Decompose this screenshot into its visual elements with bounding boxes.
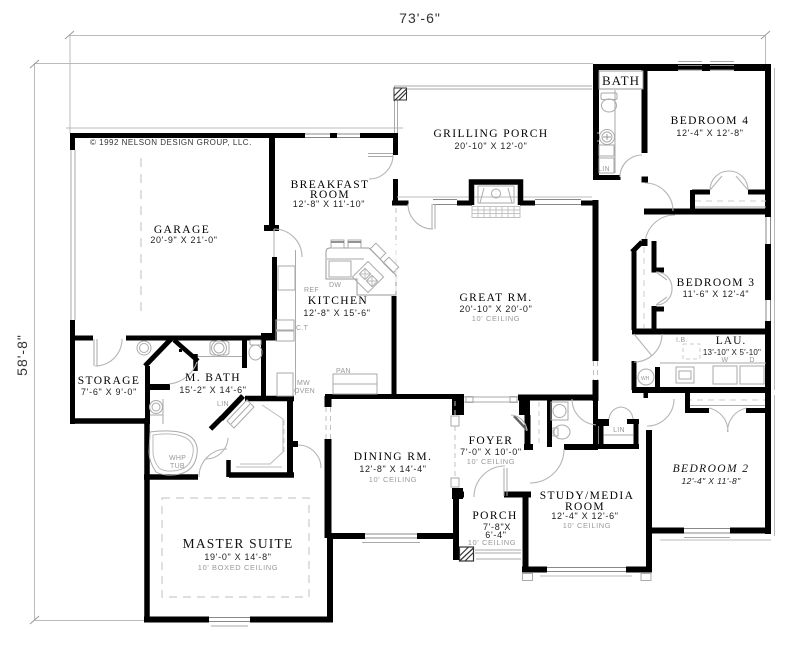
svg-text:11'-6" X 12'-4": 11'-6" X 12'-4" bbox=[683, 289, 750, 299]
svg-text:10' CEILING: 10' CEILING bbox=[369, 475, 417, 484]
svg-text:58'-8": 58'-8" bbox=[14, 334, 30, 376]
svg-text:MASTER SUITE: MASTER SUITE bbox=[183, 536, 294, 551]
svg-text:BEDROOM 3: BEDROOM 3 bbox=[677, 277, 756, 289]
svg-text:20'-10" X 20'-0": 20'-10" X 20'-0" bbox=[459, 304, 532, 314]
svg-text:LIN: LIN bbox=[613, 427, 625, 434]
svg-text:D: D bbox=[749, 357, 754, 364]
svg-text:PORCH: PORCH bbox=[472, 510, 517, 522]
svg-text:WHP: WHP bbox=[169, 455, 186, 462]
svg-text:LAU.: LAU. bbox=[716, 335, 747, 347]
svg-text:20'-9" X 21'-0": 20'-9" X 21'-0" bbox=[150, 235, 217, 245]
svg-text:LIN: LIN bbox=[598, 166, 610, 173]
svg-text:M. BATH: M. BATH bbox=[185, 372, 241, 384]
svg-text:10' CEILING: 10' CEILING bbox=[563, 521, 611, 530]
svg-text:MW: MW bbox=[297, 380, 310, 387]
svg-text:OVEN: OVEN bbox=[294, 388, 315, 395]
svg-text:12'-8" X 11'-10": 12'-8" X 11'-10" bbox=[293, 199, 365, 209]
svg-text:GRILLING PORCH: GRILLING PORCH bbox=[433, 128, 548, 140]
svg-text:10' CEILING: 10' CEILING bbox=[468, 538, 516, 547]
svg-text:GREAT RM.: GREAT RM. bbox=[459, 292, 532, 304]
svg-text:DW: DW bbox=[329, 282, 341, 289]
svg-text:BEDROOM 4: BEDROOM 4 bbox=[671, 115, 750, 127]
svg-text:BATH: BATH bbox=[602, 73, 640, 88]
svg-text:10' BOXED CEILING: 10' BOXED CEILING bbox=[198, 563, 278, 572]
svg-text:7'-0" X 10'-0": 7'-0" X 10'-0" bbox=[460, 447, 522, 457]
svg-text:13'-10" X 5'-10": 13'-10" X 5'-10" bbox=[703, 348, 761, 357]
svg-text:C.T: C.T bbox=[296, 325, 309, 332]
svg-text:LIN: LIN bbox=[217, 401, 229, 408]
svg-text:12'-4" X 12'-8": 12'-4" X 12'-8" bbox=[676, 128, 743, 138]
svg-text:15'-2" X 14'-6": 15'-2" X 14'-6" bbox=[179, 385, 246, 395]
svg-text:WH: WH bbox=[641, 376, 650, 382]
svg-text:W: W bbox=[722, 357, 729, 364]
svg-text:12'-4" X 11'-8": 12'-4" X 11'-8" bbox=[681, 476, 741, 486]
svg-text:73'-6": 73'-6" bbox=[399, 10, 441, 26]
svg-text:7'-6" X 9'-0": 7'-6" X 9'-0" bbox=[81, 387, 137, 397]
svg-text:10' CEILING: 10' CEILING bbox=[467, 457, 515, 466]
svg-text:REF: REF bbox=[304, 287, 319, 294]
svg-text:BEDROOM 2: BEDROOM 2 bbox=[673, 463, 750, 475]
svg-text:© 1992 NELSON DESIGN GROUP, LL: © 1992 NELSON DESIGN GROUP, LLC. bbox=[90, 138, 252, 147]
svg-text:STORAGE: STORAGE bbox=[78, 375, 141, 387]
svg-text:12'-8" X 15'-6": 12'-8" X 15'-6" bbox=[303, 308, 370, 318]
svg-text:TUB: TUB bbox=[170, 463, 185, 470]
svg-text:10' CEILING: 10' CEILING bbox=[472, 314, 520, 323]
svg-text:20'-10" X 12'-0": 20'-10" X 12'-0" bbox=[454, 141, 527, 151]
svg-text:12'-4" X 12'-6": 12'-4" X 12'-6" bbox=[551, 511, 618, 521]
svg-text:19'-0" X 14'-8": 19'-0" X 14'-8" bbox=[204, 552, 271, 562]
svg-text:DINING RM.: DINING RM. bbox=[354, 451, 433, 463]
svg-text:12'-8" X 14'-4": 12'-8" X 14'-4" bbox=[359, 464, 426, 474]
svg-text:FOYER: FOYER bbox=[469, 435, 514, 447]
svg-text:PAN: PAN bbox=[336, 368, 351, 375]
svg-text:KITCHEN: KITCHEN bbox=[308, 295, 368, 307]
svg-text:I.B.: I.B. bbox=[676, 337, 688, 344]
